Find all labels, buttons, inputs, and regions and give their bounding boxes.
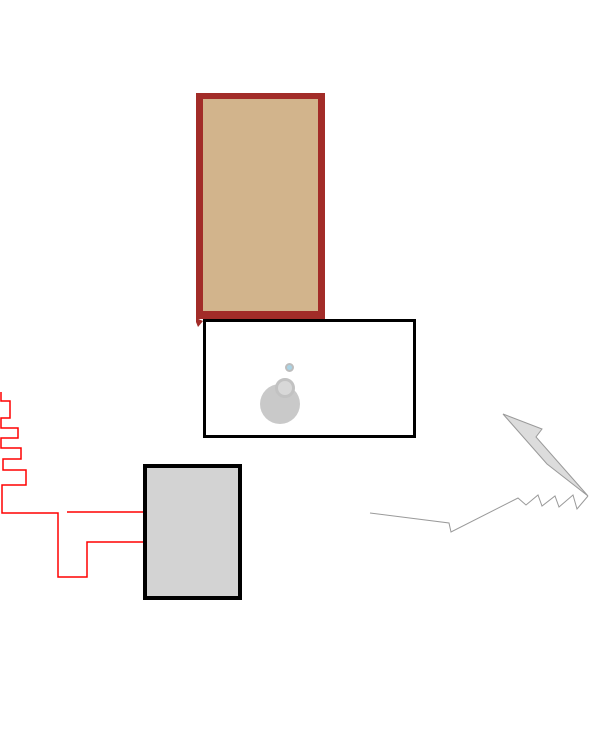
arrow-head-shape — [503, 414, 588, 496]
small-blue-dot-circle — [285, 363, 294, 372]
medium-gray-circle — [275, 378, 295, 398]
drawing-canvas[interactable] — [0, 0, 612, 736]
gray-rectangle — [143, 464, 242, 600]
arrow-zigzag-tail — [370, 495, 588, 532]
tan-rectangle-corner-overshoot — [196, 318, 203, 327]
red-staircase-line — [1, 392, 143, 577]
tan-rectangle — [196, 93, 325, 319]
white-rectangle — [203, 319, 416, 438]
